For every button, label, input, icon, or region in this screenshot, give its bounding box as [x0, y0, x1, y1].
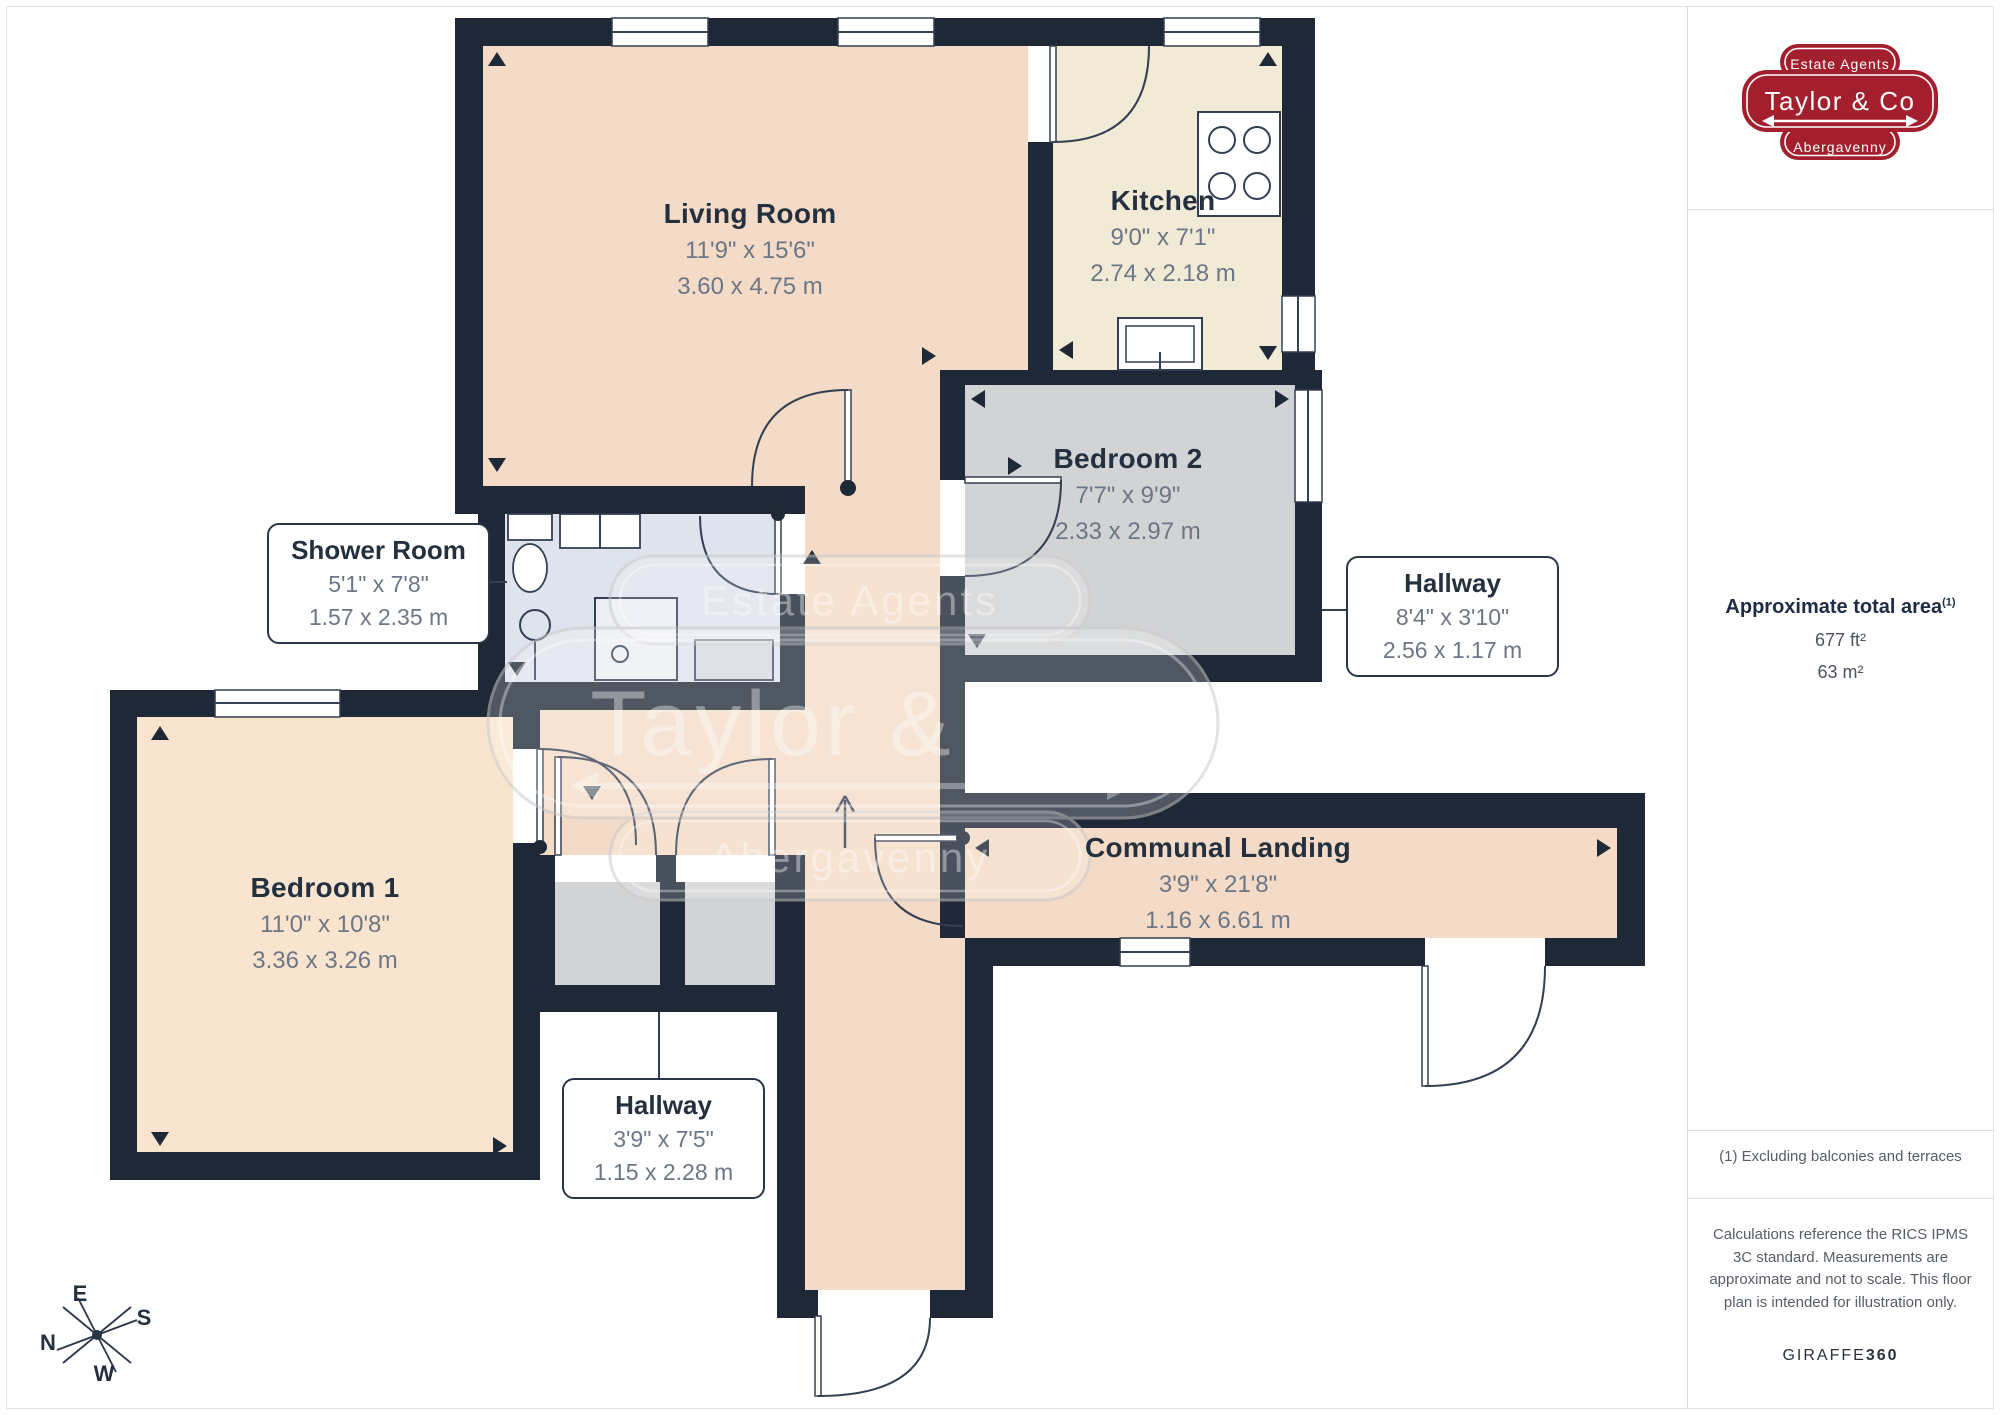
- room-name: Hallway: [578, 1090, 749, 1121]
- door-leaf: [965, 477, 1061, 483]
- logo-name: Taylor & Co: [1765, 86, 1916, 116]
- panel-divider-footnote-bottom: [1687, 1198, 1994, 1199]
- room-dim-metric: 1.15 x 2.28 m: [578, 1158, 749, 1187]
- room-dim-metric: 2.56 x 1.17 m: [1362, 636, 1543, 665]
- area-summary: Approximate total area(1) 677 ft² 63 m²: [1687, 596, 1994, 683]
- room-label-living-room: Living Room 11'9" x 15'6" 3.60 x 4.75 m: [664, 198, 837, 302]
- agency-logo: Estate Agents Taylor & Co Abergavenny: [1740, 42, 1940, 162]
- disclaimer: Calculations reference the RICS IPMS 3C …: [1702, 1224, 1979, 1314]
- window-icon: [1120, 938, 1190, 966]
- window-icon: [215, 690, 340, 717]
- door-arc: [818, 1318, 930, 1396]
- door-hinge-dot: [771, 507, 785, 521]
- credit-regular: GIRAFFE: [1782, 1347, 1865, 1364]
- room-dim-imperial: 8'4" x 3'10": [1362, 603, 1543, 632]
- area-title-superscript: (1): [1942, 596, 1955, 608]
- room-dim-metric: 1.57 x 2.35 m: [283, 603, 474, 632]
- watermark-town: Abergavenny: [710, 834, 991, 881]
- room-name: Bedroom 2: [1054, 443, 1203, 475]
- window-icon: [838, 18, 934, 46]
- sink-icon: [1118, 318, 1202, 370]
- window-icon: [1164, 18, 1260, 46]
- room-label-bedroom2: Bedroom 2 7'7" x 9'9" 2.33 x 2.97 m: [1054, 443, 1203, 547]
- floorplan-page: Estate Agents Taylor & Co Abergavenny E …: [0, 0, 2000, 1415]
- room-name: Bedroom 1: [251, 872, 400, 904]
- room-dim-metric: 2.33 x 2.97 m: [1054, 517, 1203, 547]
- vanity-icon: [560, 514, 640, 548]
- room-label-box-hallway-lower: Hallway 3'9" x 7'5" 1.15 x 2.28 m: [562, 1078, 765, 1199]
- door-hinge-dot: [533, 840, 547, 854]
- logo-town: Abergavenny: [1793, 139, 1887, 155]
- room-label-box-hallway-upper: Hallway 8'4" x 3'10" 2.56 x 1.17 m: [1346, 556, 1559, 677]
- room-dim-imperial: 9'0" x 7'1": [1090, 223, 1235, 253]
- door-hinge-dot: [840, 480, 856, 496]
- room-dim-imperial: 11'0" x 10'8": [251, 910, 400, 940]
- window-icon: [1295, 390, 1322, 502]
- door-arc: [1425, 966, 1545, 1086]
- room-dim-metric: 2.74 x 2.18 m: [1090, 259, 1235, 289]
- area-title: Approximate total area(1): [1687, 596, 1994, 619]
- door-leaf: [1050, 46, 1056, 142]
- watermark-tagline: Estate Agents: [701, 577, 999, 624]
- room-dim-metric: 3.36 x 3.26 m: [251, 946, 400, 976]
- room-dim-imperial: 7'7" x 9'9": [1054, 481, 1203, 511]
- area-value-m: 63 m²: [1687, 662, 1994, 683]
- window-icon: [1282, 296, 1315, 352]
- panel-divider-logo: [1687, 209, 1994, 210]
- room-name: Hallway: [1362, 568, 1543, 599]
- room-name: Communal Landing: [1085, 832, 1351, 864]
- compass-s: S: [137, 1305, 152, 1330]
- room-dim-imperial: 3'9" x 7'5": [578, 1125, 749, 1154]
- room-label-box-shower-room: Shower Room 5'1" x 7'8" 1.57 x 2.35 m: [267, 523, 490, 644]
- watermark-name: Taylor & Co: [590, 673, 1110, 775]
- room-dim-imperial: 11'9" x 15'6": [664, 236, 837, 266]
- floorplan-drawing: Estate Agents Taylor & Co Abergavenny E …: [0, 0, 2000, 1415]
- room-name: Living Room: [664, 198, 837, 230]
- room-label-kitchen: Kitchen 9'0" x 7'1" 2.74 x 2.18 m: [1090, 185, 1235, 289]
- door-leaf: [815, 1316, 821, 1396]
- giraffe360-credit: GIRAFFE360: [1687, 1347, 1994, 1365]
- area-title-text: Approximate total area: [1725, 596, 1942, 618]
- room-dim-metric: 1.16 x 6.61 m: [1085, 906, 1351, 936]
- compass-w: W: [94, 1361, 115, 1386]
- room-dim-metric: 3.60 x 4.75 m: [664, 272, 837, 302]
- compass-rose: E S N W: [40, 1281, 151, 1386]
- logo-tagline: Estate Agents: [1790, 56, 1889, 72]
- room-name: Kitchen: [1090, 185, 1235, 217]
- room-label-bedroom1: Bedroom 1 11'0" x 10'8" 3.36 x 3.26 m: [251, 872, 400, 976]
- door-leaf: [845, 390, 851, 486]
- room-dim-imperial: 5'1" x 7'8": [283, 570, 474, 599]
- compass-e: E: [73, 1281, 88, 1306]
- room-label-communal-landing: Communal Landing 3'9" x 21'8" 1.16 x 6.6…: [1085, 832, 1351, 936]
- area-value-ft: 677 ft²: [1687, 630, 1994, 651]
- credit-bold: 360: [1866, 1347, 1899, 1364]
- compass-n: N: [40, 1330, 56, 1355]
- room-dim-imperial: 3'9" x 21'8": [1085, 870, 1351, 900]
- panel-divider-footnote-top: [1687, 1130, 1994, 1131]
- room-name: Shower Room: [283, 535, 474, 566]
- footnote: (1) Excluding balconies and terraces: [1687, 1148, 1994, 1165]
- window-icon: [612, 18, 708, 46]
- door-leaf: [1422, 966, 1428, 1086]
